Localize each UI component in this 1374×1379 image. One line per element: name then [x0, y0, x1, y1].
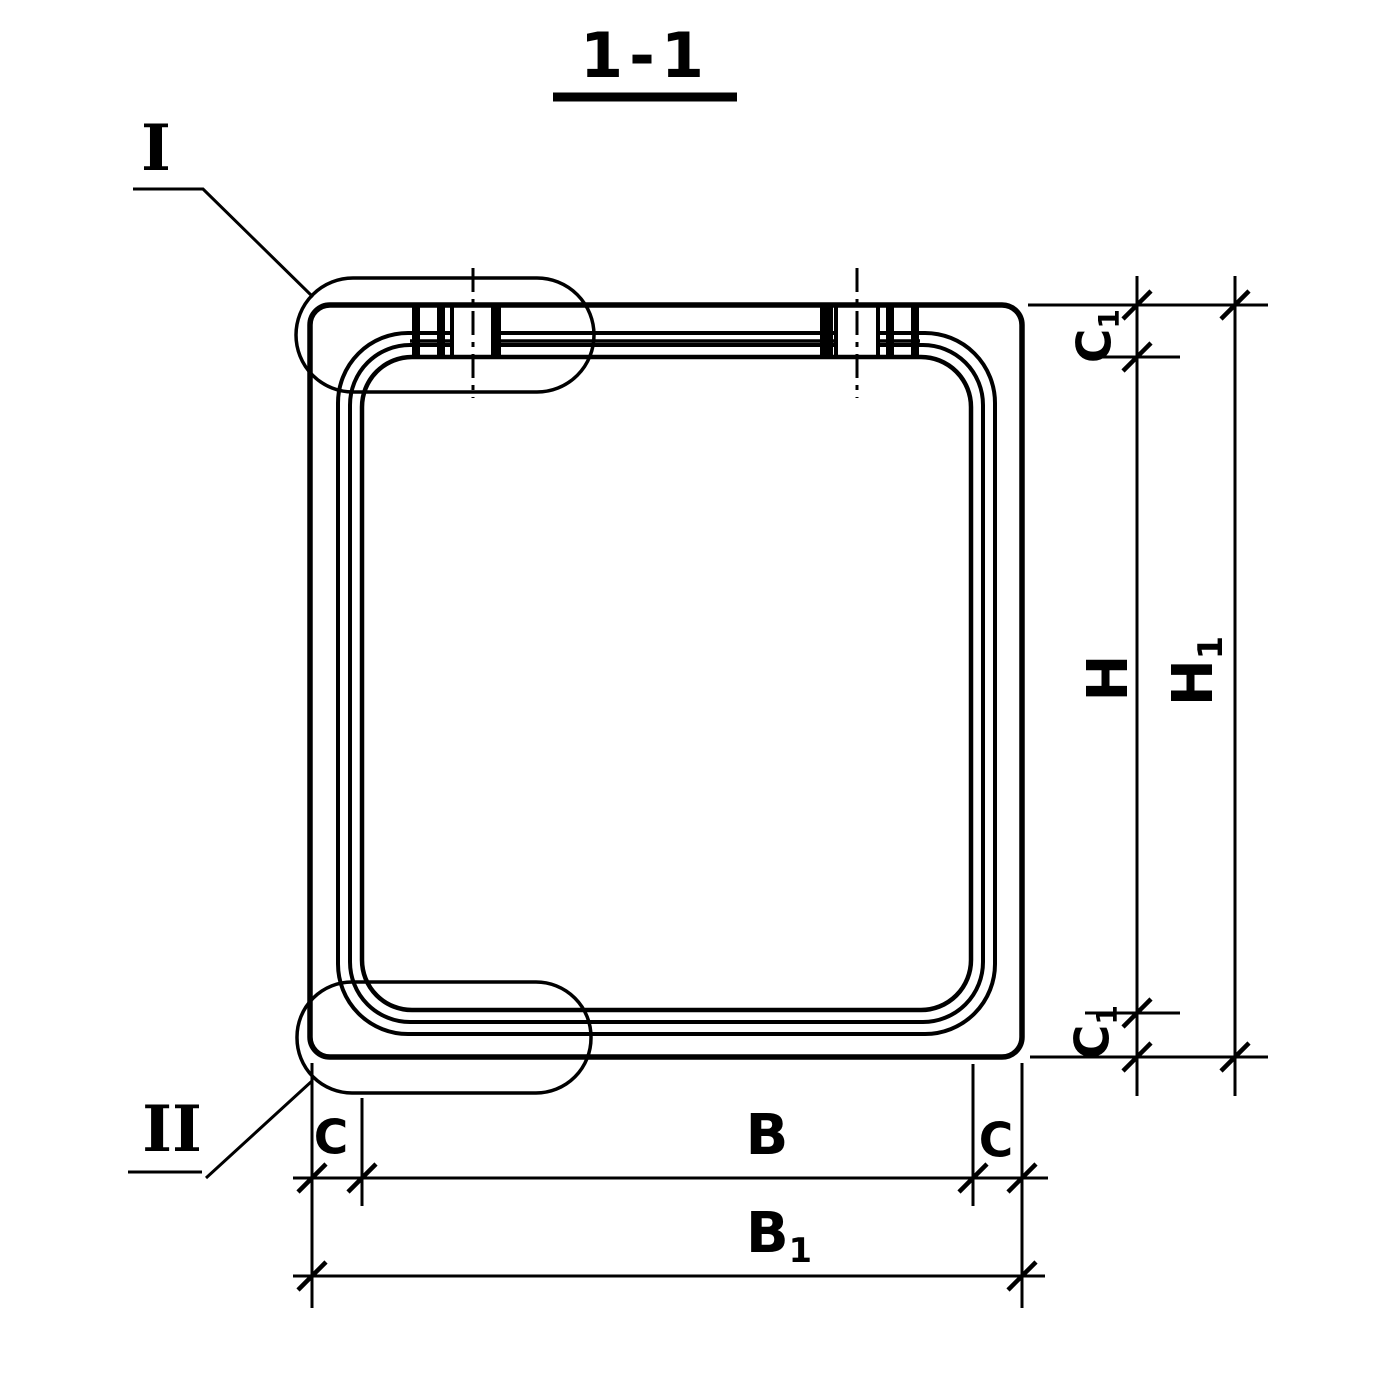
detail-boundaries [296, 278, 594, 1093]
dim-label-b: B [746, 1108, 789, 1170]
section-title: 1-1 [580, 25, 710, 87]
dim-label-c1-bottom: C1 [1070, 1005, 1123, 1059]
dim-label-c-left: C [314, 1115, 349, 1168]
dim-label-h1: H1 [1166, 636, 1228, 706]
dim-label-h: H [1081, 655, 1143, 702]
leader-detail-I [133, 189, 313, 297]
inner-opening-lines [338, 333, 995, 1034]
detail-marker-I: I [141, 117, 171, 181]
extension-lines [312, 305, 1268, 1308]
detail-marker-II: II [142, 1098, 202, 1162]
dim-label-b1: B1 [746, 1206, 812, 1268]
detail-circle-II [297, 982, 591, 1093]
frame-outline [310, 305, 1022, 1057]
dim-label-c-right: C [979, 1118, 1014, 1171]
dim-label-c1-top: C1 [1072, 309, 1125, 363]
detail-leaders [128, 189, 313, 1178]
technical-drawing-canvas: 1-1 I II C1 H H1 C1 C B C B1 [0, 0, 1374, 1379]
